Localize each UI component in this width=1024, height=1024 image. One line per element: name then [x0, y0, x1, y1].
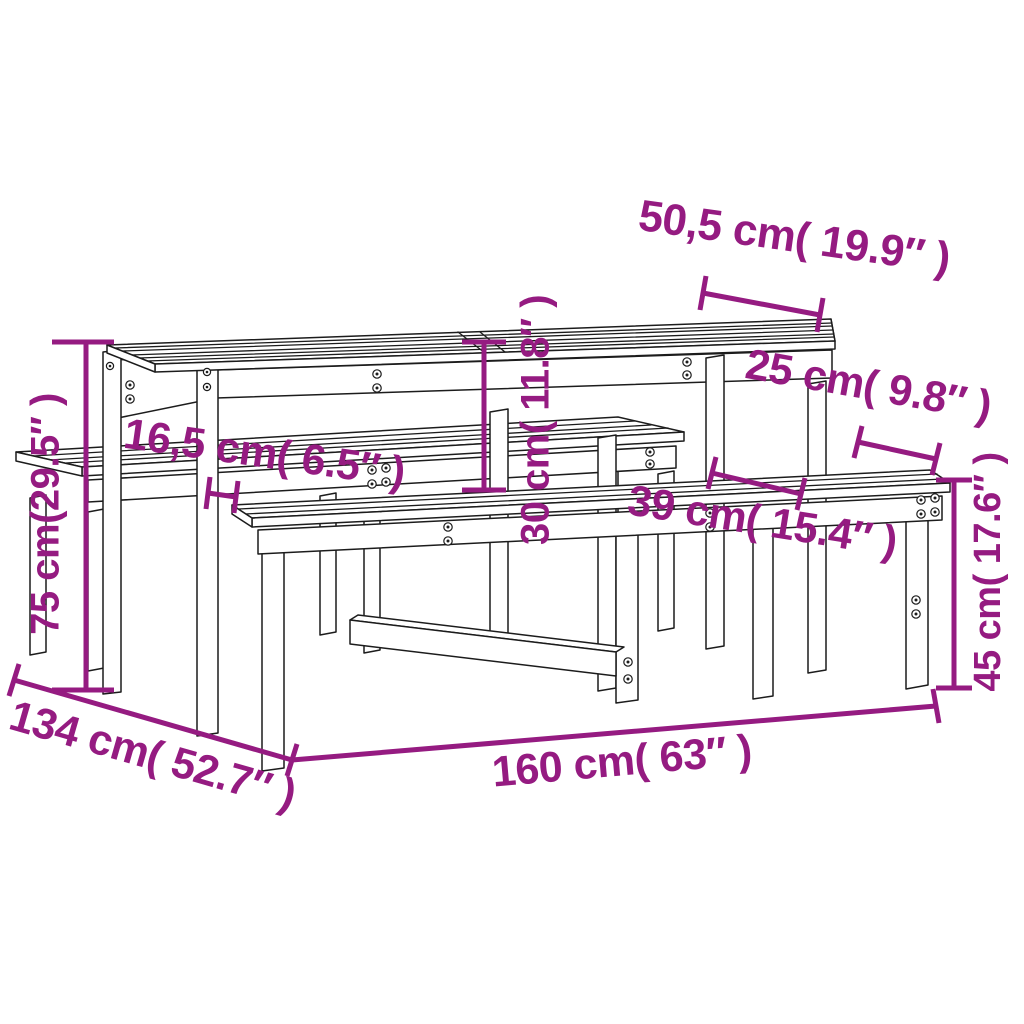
dimension-label-table-top-depth: 50,5 cm( 19.9″ ) [636, 191, 954, 283]
dim-table-top-depth: 50,5 cm( 19.9″ ) [636, 191, 954, 332]
front-bench-leg [262, 543, 284, 771]
dimension-label-table-height: 75 cm(29.5″ ) [24, 393, 68, 635]
table-leg [103, 350, 121, 694]
table-leg [197, 350, 218, 736]
dimension-label-table-above-bench: 30 cm( 11.8″ ) [514, 295, 558, 545]
brace-board [350, 620, 616, 676]
dimension-tick [700, 276, 706, 310]
dimension-label-total-length: 160 cm( 63″ ) [490, 726, 754, 797]
dimension-label-total-depth: 134 cm( 52.7″ ) [4, 692, 301, 820]
product-dimension-diagram: 50,5 cm( 19.9″ ) 25 cm( 9.8″ ) 16,5 cm( … [0, 0, 1024, 1024]
dimension-label-bench-height: 45 cm( 17.6″ ) [967, 452, 1009, 691]
diagram-canvas: 50,5 cm( 19.9″ ) 25 cm( 9.8″ ) 16,5 cm( … [0, 0, 1024, 1024]
front-bench-leg [753, 523, 773, 699]
back-bench-leg [88, 509, 104, 671]
dimension-line [858, 442, 936, 459]
dimension-tick [933, 689, 939, 723]
dimension-line [703, 293, 820, 315]
dim-total-depth: 134 cm( 52.7″ ) [4, 664, 301, 819]
dimension-label-bench-seat-depth: 25 cm( 9.8″ ) [742, 340, 995, 430]
dim-bench-seat-depth: 25 cm( 9.8″ ) [742, 340, 995, 475]
dim-total-length: 160 cm( 63″ ) [292, 689, 939, 797]
